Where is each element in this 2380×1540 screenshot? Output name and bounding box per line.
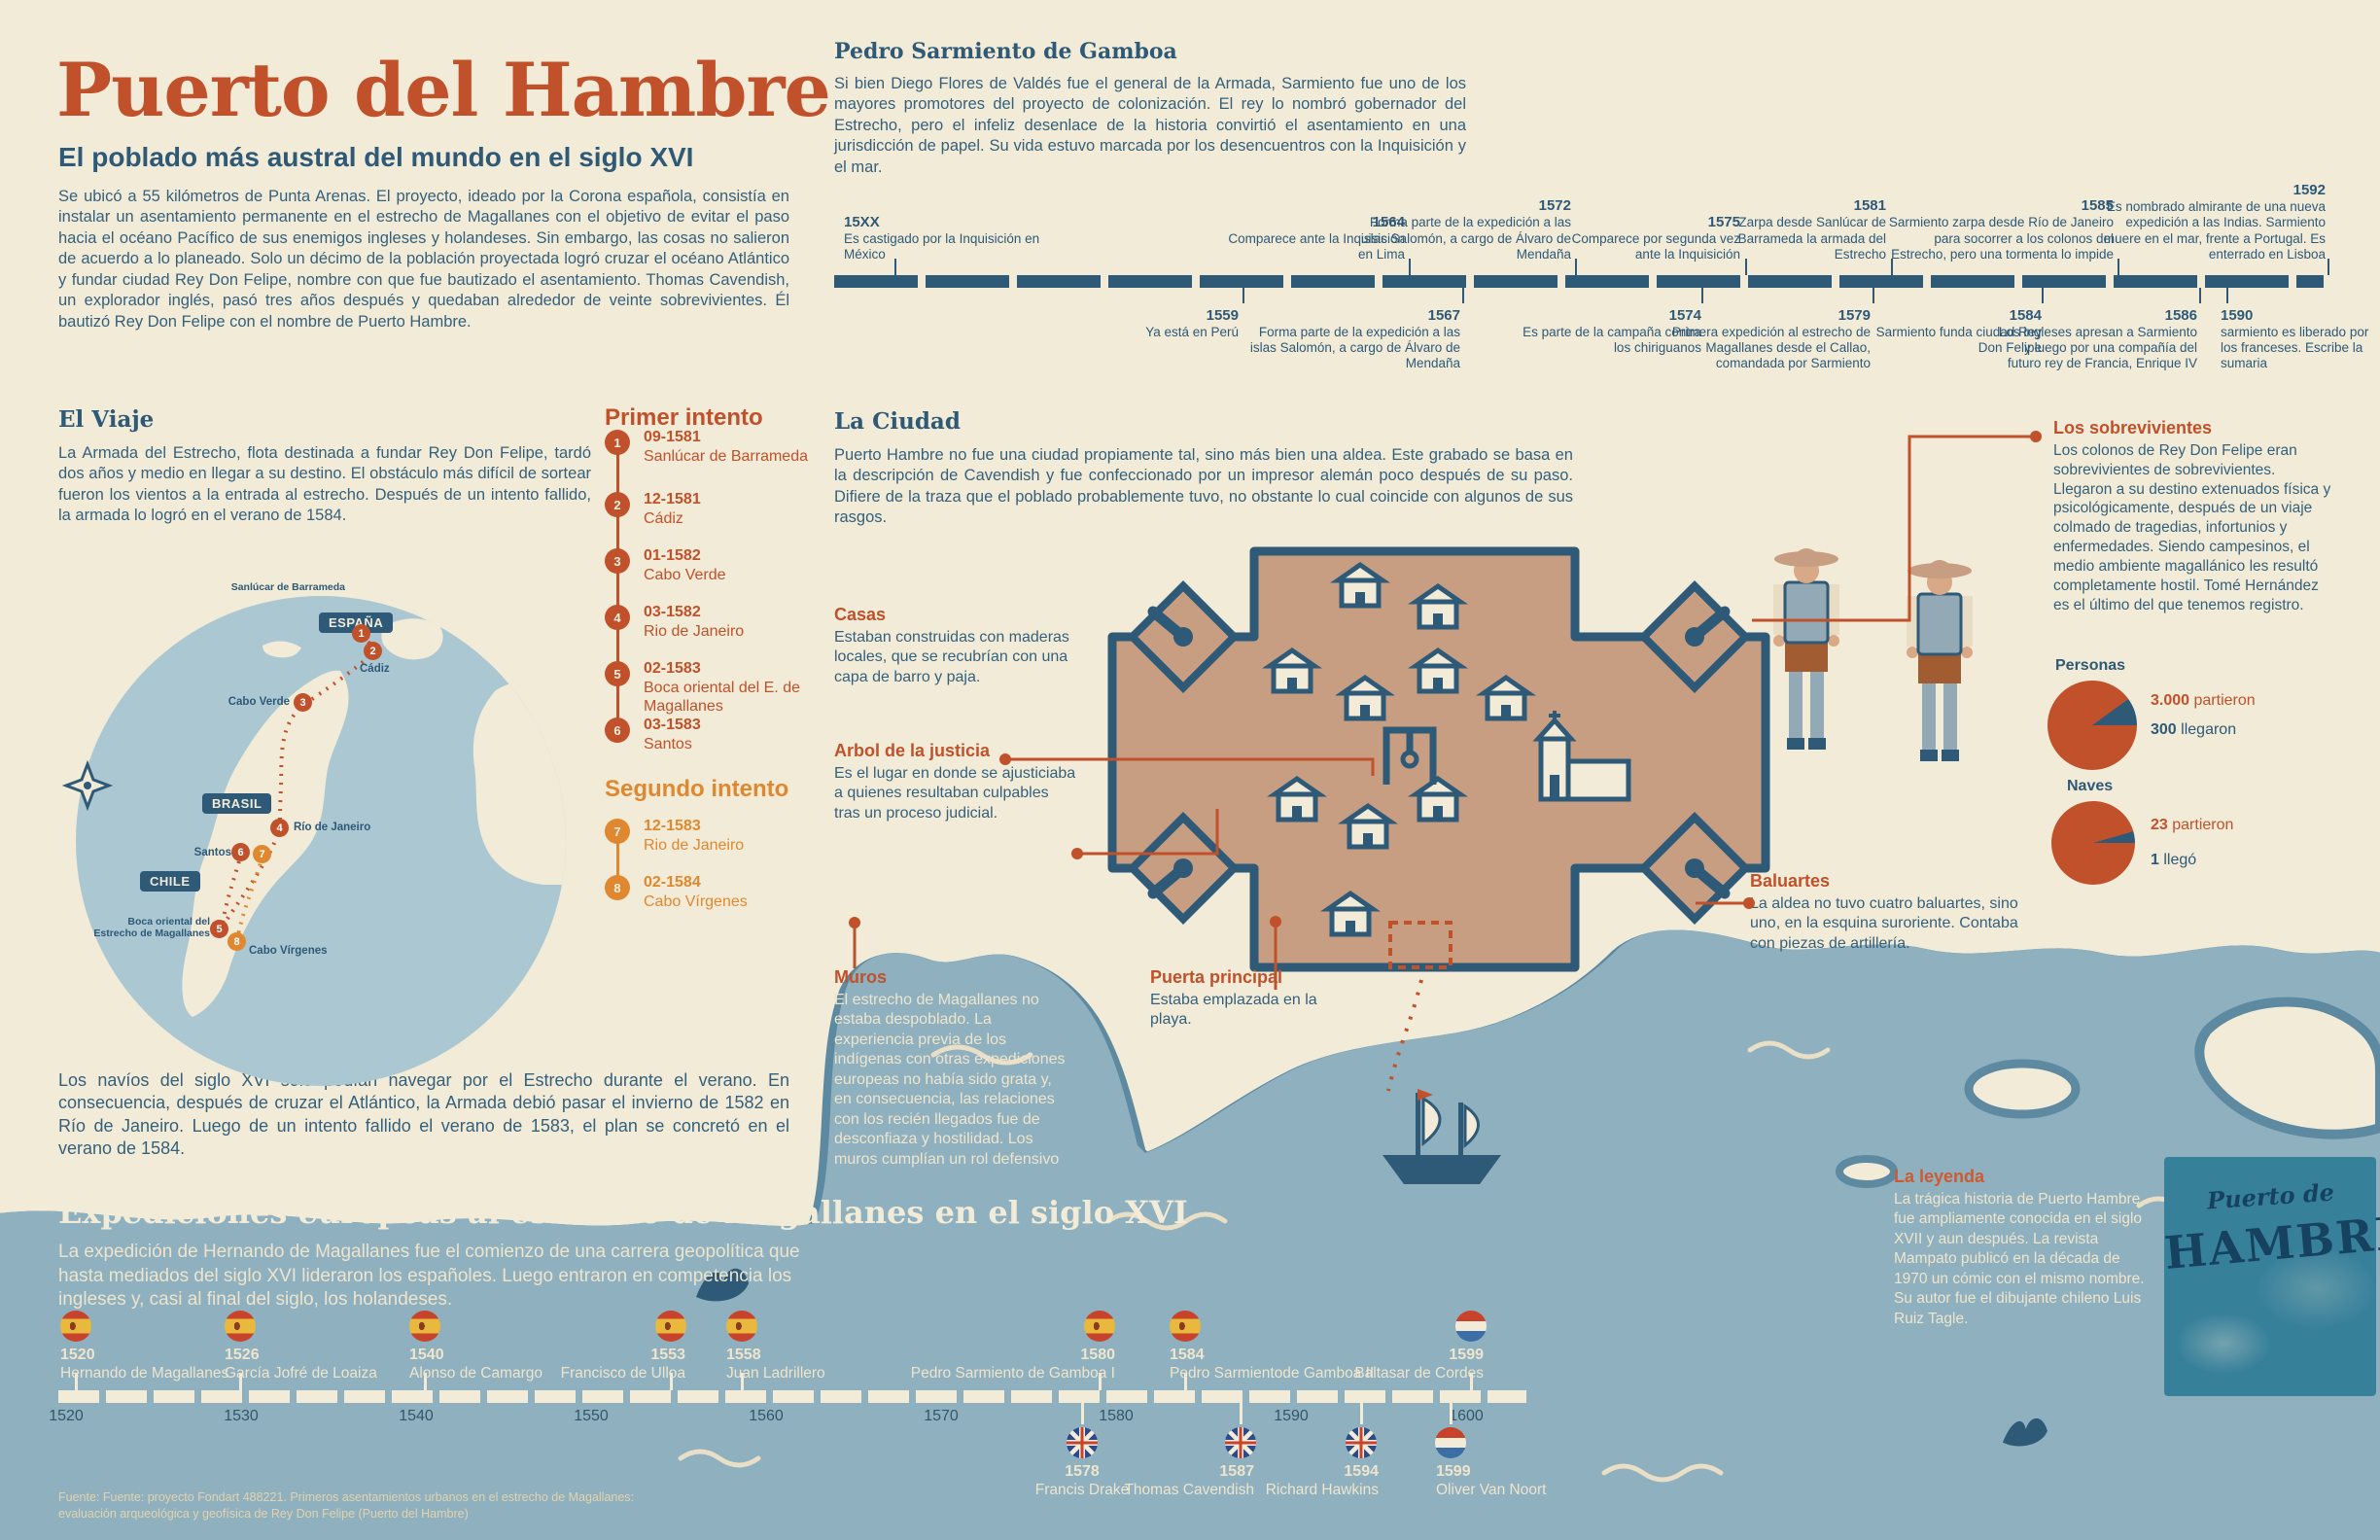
expediciones-paragraph: La expedición de Hernando de Magallanes … <box>58 1241 817 1312</box>
map-point-1: 1 <box>352 624 370 643</box>
spain-flag-icon <box>409 1311 440 1342</box>
primer-item-5: 02-1583 Boca oriental del E. de Magallan… <box>644 659 819 717</box>
map-point-5: 5 <box>210 920 228 938</box>
map-label-cabo-virgenes: Cabo Vírgenes <box>249 945 328 958</box>
atlantic-map: Sanlúcar de Barrameda ESPAÑA Cádiz Cabo … <box>39 574 583 1118</box>
tick <box>1701 288 1703 303</box>
personas-pie-chart <box>2047 681 2137 770</box>
axis-label-1530: 1530 <box>212 1408 270 1425</box>
timeline-event-1579: 1579 Primera expedición al estrecho de M… <box>1647 307 1871 372</box>
ciudad-paragraph: Puerto Hambre no fue una ciudad propiame… <box>834 445 1573 529</box>
spain-flag-icon <box>726 1311 757 1342</box>
expedition-1599-cordes: 1599 Baltasar de Cordes <box>1270 1346 1484 1382</box>
colonist-figure <box>1773 548 1973 761</box>
tick <box>1240 1403 1242 1424</box>
tick <box>2226 288 2228 303</box>
annotation-baluartes: Baluartes La aldea no tuvo cuatro baluar… <box>1750 871 2042 954</box>
tick <box>2199 288 2201 303</box>
expedition-1553: 1553 Francisco de Ulloa <box>472 1346 685 1382</box>
axis-label-1560: 1560 <box>737 1408 795 1425</box>
expedition-1599-van-noort: 1599 Oliver Van Noort <box>1436 1462 1650 1499</box>
expedition-1594-hawkins: 1594 Richard Hawkins <box>1184 1462 1379 1499</box>
segundo-item-7-number: 7 <box>605 819 630 844</box>
axis-label-1520: 1520 <box>37 1408 95 1425</box>
netherlands-flag-icon <box>1435 1427 1466 1458</box>
map-label-cabo-verde: Cabo Verde <box>204 696 290 709</box>
timeline-event-1572: 1572 Forma parte de la expedición a las … <box>1357 197 1571 262</box>
naves-arrived: 1 llegó <box>2151 852 2196 869</box>
axis-label-1590: 1590 <box>1262 1408 1320 1425</box>
island-small <box>1969 1064 2076 1114</box>
expedition-1526: 1526 García Jofré de Loaiza <box>225 1346 438 1382</box>
africa-shape <box>473 678 583 885</box>
annotation-muros: Muros El estrecho de Magallanes no estab… <box>834 967 1067 1170</box>
tick <box>1360 1403 1363 1424</box>
annotation-puerta: Puerta principal Estaba emplazada en la … <box>1150 967 1335 1031</box>
tick <box>1242 288 1244 303</box>
map-label-boca: Boca oriental del Estrecho de Magallanes <box>86 916 210 939</box>
segundo-item-8-number: 8 <box>605 875 630 900</box>
tick <box>1081 1403 1084 1424</box>
globe-illustration <box>39 574 583 1118</box>
spain-flag-icon <box>60 1311 91 1342</box>
uk-flag-icon <box>1225 1427 1256 1458</box>
netherlands-flag-icon <box>1455 1311 1487 1342</box>
infographic-canvas: Puerto del Hambre El poblado más austral… <box>0 0 2380 1540</box>
map-point-2: 2 <box>364 642 382 660</box>
source-line-1: Fuente: Fuente: proyecto Fondart 488221.… <box>58 1489 933 1506</box>
page-subtitle: El poblado más austral del mundo en el s… <box>58 142 693 173</box>
axis-label-1600: 1600 <box>1437 1408 1495 1425</box>
expedition-1580: 1580 Pedro Sarmiento de Gamboa I <box>901 1346 1115 1382</box>
source-line-2: evaluación arqueológica y geofísica de R… <box>58 1506 933 1522</box>
page-title: Puerto del Hambre <box>56 47 830 133</box>
timeline-event-15xx: 15XX Es castigado por la Inquisición en … <box>844 214 1067 262</box>
primer-item-1: 09-1581 Sanlúcar de Barrameda <box>644 428 814 466</box>
timeline-event-1567: 1567 Forma parte de la expedición a las … <box>1246 307 1460 372</box>
spain-flag-icon <box>1170 1311 1201 1342</box>
segundo-item-7: 12-1583 Rio de Janeiro <box>644 817 814 855</box>
primer-item-2-number: 2 <box>605 492 630 517</box>
personas-departed: 3.000 partieron <box>2151 692 2256 710</box>
map-label-santos: Santos <box>161 847 231 859</box>
segundo-item-8: 02-1584 Cabo Vírgenes <box>644 873 814 911</box>
tick <box>2042 288 2044 303</box>
segundo-intento-heading: Segundo intento <box>605 776 788 803</box>
tick <box>1872 288 1874 303</box>
leyenda-paragraph: La trágica historia de Puerto Hambre fue… <box>1894 1190 2156 1329</box>
map-point-3: 3 <box>294 693 312 712</box>
source-footer: Fuente: Fuente: proyecto Fondart 488221.… <box>58 1489 933 1522</box>
ciudad-heading: La Ciudad <box>834 408 961 435</box>
map-badge-brasil: BRASIL <box>202 793 271 814</box>
axis-label-1580: 1580 <box>1087 1408 1145 1425</box>
viaje-paragraph: La Armada del Estrecho, flota destinada … <box>58 443 591 527</box>
leyenda-block: La leyenda La trágica historia de Puerto… <box>1894 1167 2156 1329</box>
timeline-event-1592: 1592 Es nombrado almirante de una nueva … <box>2097 182 2326 262</box>
leyenda-heading: La leyenda <box>1894 1167 2156 1187</box>
primer-item-3-number: 3 <box>605 548 630 574</box>
timeline-event-1581: 1581 Zarpa desde Sanlúcar de Barrameda l… <box>1716 197 1886 262</box>
axis-label-1570: 1570 <box>912 1408 970 1425</box>
annotation-sobrevivientes: Los sobrevivientes Los colonos de Rey Do… <box>2053 418 2337 614</box>
expediciones-heading: Expediciones europeas al estrecho de Mag… <box>58 1194 1188 1231</box>
timeline-event-1590: 1590 sarmiento es liberado por los franc… <box>2221 307 2380 372</box>
fort-illustration <box>1099 540 1779 987</box>
sarmiento-timeline-bar <box>834 275 2324 288</box>
spain-flag-icon <box>655 1311 686 1342</box>
map-point-6: 6 <box>231 843 250 861</box>
primer-item-6: 03-1583 Santos <box>644 716 814 753</box>
primer-item-1-number: 1 <box>605 430 630 455</box>
map-point-4: 4 <box>270 819 289 837</box>
comic-book-cover: Puerto de HAMBRE <box>2164 1157 2376 1396</box>
axis-label-1540: 1540 <box>387 1408 445 1425</box>
timeline-event-1585: 1585 Sarmiento zarpa desde Río de Janeir… <box>1885 197 2114 262</box>
primer-item-2: 12-1581 Cádiz <box>644 490 814 528</box>
annotation-casas: Casas Estaban construidas con maderas lo… <box>834 605 1082 687</box>
colonists-illustration <box>1731 520 2022 792</box>
sarmiento-paragraph: Si bien Diego Flores de Valdés fue el ge… <box>834 74 1466 178</box>
primer-item-4-number: 4 <box>605 605 630 630</box>
book-cover-top-text: Puerto de <box>2206 1177 2335 1214</box>
map-badge-chile: CHILE <box>140 871 200 892</box>
sarmiento-heading: Pedro Sarmiento de Gamboa <box>834 39 1177 64</box>
timeline-event-1575: 1575 Comparece por segunda vez ante la I… <box>1546 214 1740 262</box>
primer-intento-line <box>616 442 619 730</box>
book-cover-title: HAMBRE <box>2162 1206 2380 1279</box>
timeline-event-1586: 1586 Los ingleses apresan a Sarmiento y … <box>1993 307 2197 372</box>
spain-flag-icon <box>225 1311 256 1342</box>
primer-item-6-number: 6 <box>605 717 630 743</box>
spain-flag-icon <box>1084 1311 1115 1342</box>
expedition-1558: 1558 Juan Ladrillero <box>726 1346 921 1382</box>
viaje-heading: El Viaje <box>58 406 154 433</box>
personas-arrived: 300 llegaron <box>2151 721 2236 739</box>
timeline-event-1559: 1559 Ya está en Perú <box>1083 307 1239 340</box>
map-point-7: 7 <box>253 845 271 863</box>
map-point-8: 8 <box>227 932 246 951</box>
tick <box>1462 288 1464 303</box>
tick <box>2327 259 2329 275</box>
map-label-sanlucar: Sanlúcar de Barrameda <box>190 581 345 593</box>
naves-pie-chart <box>2051 801 2135 885</box>
primer-item-4: 03-1582 Rio de Janeiro <box>644 603 814 641</box>
tick <box>1450 1403 1452 1424</box>
naves-heading: Naves <box>2067 778 2113 795</box>
annotation-arbol: Arbol de la justicia Es el lugar en dond… <box>834 741 1077 823</box>
primer-item-3: 01-1582 Cabo Verde <box>644 546 814 584</box>
map-label-rio: Río de Janeiro <box>294 822 370 834</box>
map-label-cadiz: Cádiz <box>360 663 390 676</box>
primer-item-5-number: 5 <box>605 661 630 686</box>
uk-flag-icon <box>1067 1427 1098 1458</box>
intro-paragraph: Se ubicó a 55 kilómetros de Punta Arenas… <box>58 187 789 332</box>
personas-heading: Personas <box>2055 657 2125 675</box>
expedition-axis-bar <box>58 1390 1526 1403</box>
islet <box>1839 1159 1894 1184</box>
uk-flag-icon <box>1346 1427 1377 1458</box>
axis-label-1550: 1550 <box>562 1408 620 1425</box>
naves-departed: 23 partieron <box>2151 817 2233 834</box>
